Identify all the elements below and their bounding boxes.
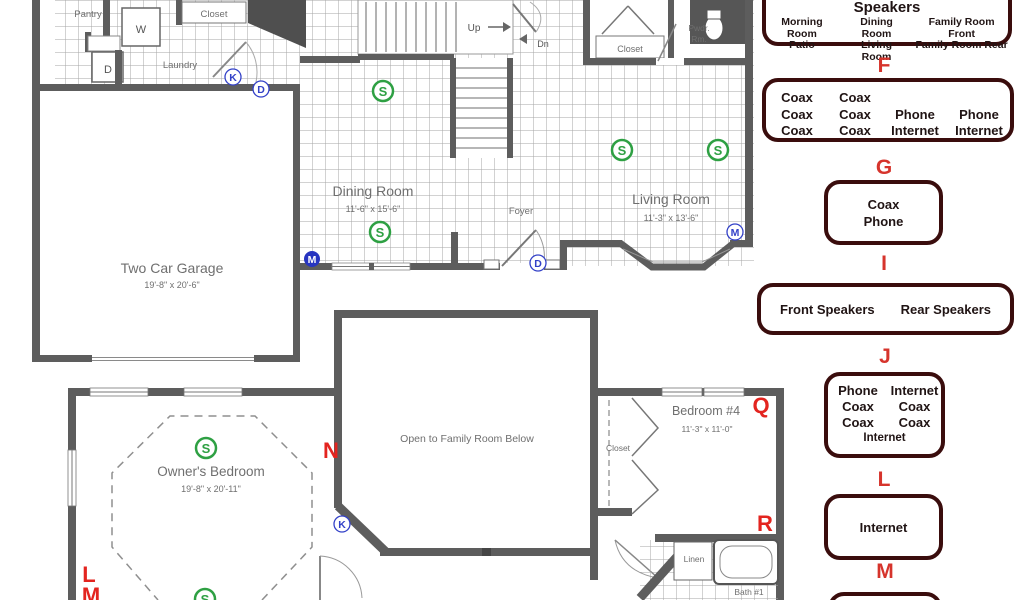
plan-letter-q: Q <box>748 395 774 417</box>
plan-letter-n: N <box>318 440 344 462</box>
dining-room-label: Dining Room <box>333 183 414 199</box>
m-marker: M <box>304 251 320 267</box>
living-room-dims: 11'-3" x 13'-6" <box>644 213 699 223</box>
svg-text:S: S <box>201 592 210 600</box>
washer-label: W <box>136 24 147 36</box>
owners-bedroom-dims: 19'-8" x 20'-11" <box>181 484 241 494</box>
stairs-up-label: Up <box>468 23 481 34</box>
speakers-title: Speakers <box>766 0 1008 16</box>
svg-text:M: M <box>308 254 317 266</box>
powder-room-label-2: Rm. <box>691 34 707 44</box>
dining-room-dims: 11'-6" x 15'-6" <box>346 204 401 214</box>
svg-text:S: S <box>202 441 211 456</box>
closet-bifold-doors <box>632 398 658 514</box>
closet-top-label: Closet <box>201 9 228 20</box>
plan-letter-m: M <box>78 585 104 600</box>
family-room-walls <box>334 310 598 580</box>
svg-text:S: S <box>714 143 723 158</box>
bathtub-icon <box>714 540 778 584</box>
garage-label: Two Car Garage <box>121 260 224 276</box>
bedroom4-closet-label: Closet <box>606 443 631 453</box>
owners-bedroom-walls <box>68 388 362 600</box>
bedroom4-label: Bedroom #4 <box>672 404 740 418</box>
speaker-marker: S <box>196 438 216 458</box>
svg-text:D: D <box>257 84 265 96</box>
foyer-label: Foyer <box>509 206 533 217</box>
speaker-marker: S <box>370 222 390 242</box>
legend-letter-i: I <box>864 252 904 276</box>
svg-text:M: M <box>731 227 740 239</box>
linen-label: Linen <box>684 554 705 564</box>
legend-box-f: CoaxCoax CoaxCoaxPhonePhone CoaxCoaxInte… <box>762 78 1014 142</box>
speaker-marker: S <box>612 140 632 160</box>
legend-letter-j: J <box>865 345 905 369</box>
d-marker: D <box>253 81 269 97</box>
floor-plan: Pantry Closet W D Laundry Up Dn Closet P… <box>0 0 790 600</box>
speakers-col-3: Family Room Front Family Room Rear <box>915 17 1008 63</box>
legend-letter-g: G <box>864 156 904 180</box>
owners-bedroom-label: Owner's Bedroom <box>157 464 265 479</box>
legend-letter-f: F <box>864 54 904 78</box>
svg-text:S: S <box>618 143 627 158</box>
family-room-label: Open to Family Room Below <box>400 433 534 445</box>
legend-box-g: Coax Phone <box>824 180 943 245</box>
laundry-label: Laundry <box>163 60 198 71</box>
bath1-label: Bath #1 <box>734 587 764 597</box>
legend-box-j: PhoneInternet CoaxCoax CoaxCoax Internet <box>824 372 945 458</box>
m-marker: M <box>727 224 743 240</box>
legend-letter-l: L <box>864 468 904 492</box>
speaker-marker: S <box>195 589 215 600</box>
powder-room-label-1: Pwdr. <box>688 23 709 33</box>
svg-text:S: S <box>379 84 388 99</box>
svg-text:D: D <box>534 258 542 270</box>
garage-dims: 19'-8" x 20'-6" <box>144 280 199 290</box>
keypad-marker: K <box>225 69 241 85</box>
speaker-marker: S <box>708 140 728 160</box>
d-marker: D <box>530 255 546 271</box>
legend-box-i: Front Speakers Rear Speakers <box>757 283 1014 335</box>
floor-plan-page: Pantry Closet W D Laundry Up Dn Closet P… <box>0 0 1024 600</box>
legend-box-speakers: Speakers Morning Room Patio Dining Room … <box>762 0 1012 46</box>
pantry-label: Pantry <box>74 9 102 20</box>
keypad-marker: K <box>334 516 350 532</box>
dryer-label: D <box>104 64 112 76</box>
living-room-label: Living Room <box>632 191 710 207</box>
speaker-marker: S <box>373 81 393 101</box>
bedroom4-dims: 11'-3" x 11'-0" <box>681 424 732 434</box>
legend-letter-m: M <box>865 560 905 584</box>
speakers-col-1: Morning Room Patio <box>766 17 838 63</box>
svg-text:K: K <box>338 519 346 531</box>
closet-hall-label: Closet <box>617 44 643 54</box>
legend-box-m <box>828 592 942 600</box>
legend-box-l: Internet <box>824 494 943 560</box>
stairs-dn-label: Dn <box>537 39 549 49</box>
plan-letter-r: R <box>752 513 778 535</box>
svg-text:K: K <box>229 72 237 84</box>
svg-text:S: S <box>376 225 385 240</box>
